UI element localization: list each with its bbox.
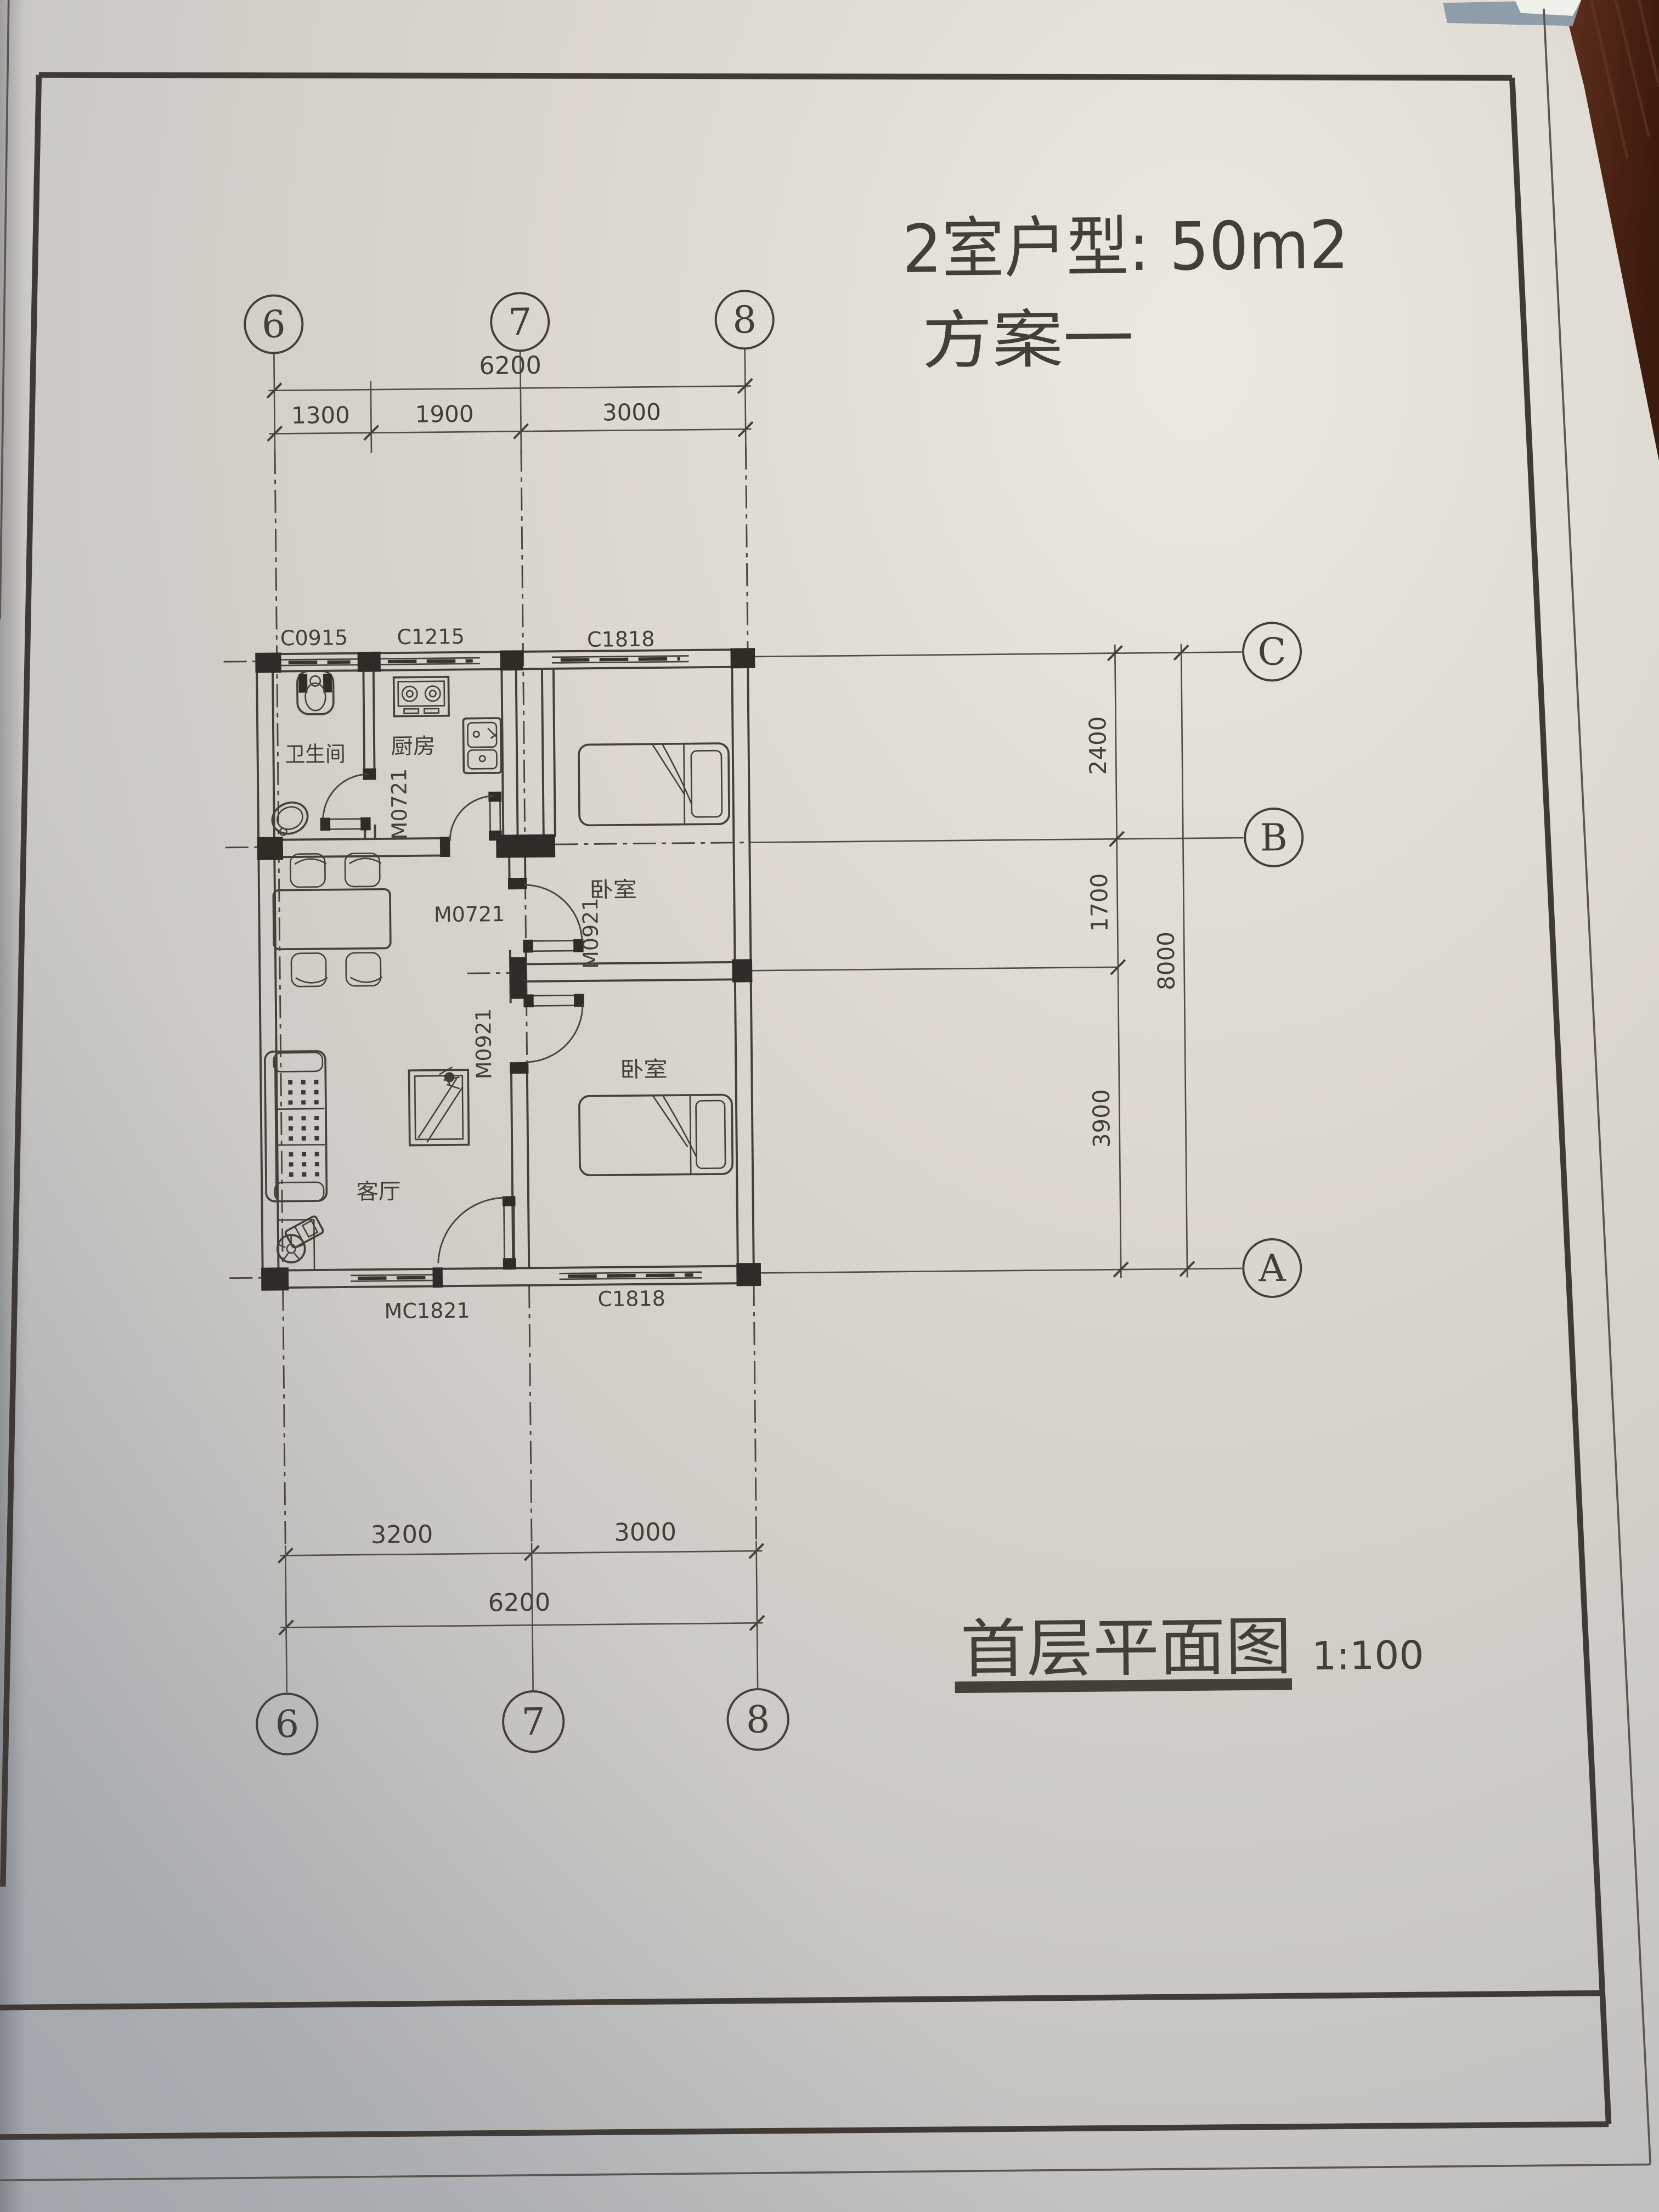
dim-right-8000: 8000 (1153, 932, 1180, 990)
door-leaf-cap (320, 817, 331, 831)
dim-extension-1300 (371, 381, 371, 453)
axis-bubble-8-bottom-label: 8 (746, 1699, 770, 1742)
room-label-kitchen: 厨房 (391, 733, 436, 759)
dim-top-3000: 3000 (602, 398, 661, 426)
axis-bubble-7-bottom-label: 7 (521, 1701, 545, 1744)
pier-top-partition (358, 652, 381, 672)
pier-B-left (257, 837, 283, 860)
window-label-C1818-bottom: C1818 (597, 1286, 665, 1311)
room-label-bedroom2: 卧室 (620, 1057, 668, 1082)
drawing-scale: 1:100 (1312, 1632, 1424, 1679)
jamb-bedroom1-door (508, 878, 527, 889)
axis-bubble-8-top-label: 8 (732, 298, 757, 342)
door-leaf-cap (360, 817, 371, 831)
axis6-extension-top (274, 353, 275, 451)
dim-right-3900: 3900 (1088, 1089, 1115, 1148)
paper-shadow-bottom-left (0, 0, 1659, 2212)
dim-right-2400: 2400 (1084, 716, 1111, 775)
pier-partition-junction (510, 957, 527, 998)
sheet-svg: 2室户型: 50m2 方案一 6200 1300 1900 3000 (0, 0, 1659, 2212)
unit-type-title: 2室户型: 50m2 (902, 207, 1349, 288)
pier-partition-right (732, 959, 752, 982)
jamb-bedroom2-door (510, 1062, 528, 1074)
room-label-bathroom: 卫生间 (285, 742, 346, 768)
pier-B-axis7 (496, 834, 555, 858)
window-label-C1818-top: C1818 (587, 627, 655, 652)
door-label-MC1821: MC1821 (384, 1299, 470, 1323)
axis8-extension-top (745, 348, 746, 446)
door-leaf-cap (523, 994, 534, 1007)
pier-top-right (730, 648, 755, 668)
axis-bubble-6-top-label: 6 (262, 303, 286, 346)
dim-top-overall: 6200 (479, 351, 541, 380)
axis-bubble-6-bottom-label: 6 (275, 1703, 299, 1746)
pier-top-axis7 (500, 650, 523, 670)
jamb-kitchen-door (440, 837, 450, 857)
axis-bubble-B-label: B (1260, 816, 1288, 860)
drawing-title: 首层平面图 (960, 1610, 1292, 1687)
door-leaf-cap (489, 831, 502, 841)
dim-bottom-3000: 3000 (614, 1517, 676, 1547)
dim-top-1900: 1900 (415, 400, 473, 428)
door-label-M0921-bedroom2: M0921 (471, 1008, 496, 1080)
dim-bottom-3200: 3200 (371, 1520, 433, 1549)
door-leaf-cap (523, 940, 533, 953)
window-label-C0915: C0915 (280, 625, 348, 650)
pier-top-left (255, 652, 281, 673)
dim-right-1700: 1700 (1086, 873, 1113, 932)
axis-bubble-C-label: C (1257, 630, 1286, 674)
door-label-M0721-kitchen: M0721 (434, 902, 505, 927)
scheme-title: 方案一 (922, 302, 1134, 378)
pier-bottom-left (261, 1267, 289, 1290)
window-label-C1215: C1215 (397, 624, 465, 649)
frame-top (39, 75, 1512, 78)
dim-top-1300: 1300 (291, 402, 350, 429)
axis-bubble-A-label: A (1258, 1247, 1286, 1290)
axis-bubble-7-top-label: 7 (508, 301, 532, 344)
room-label-living: 客厅 (356, 1179, 401, 1205)
pier-bottom-right (736, 1263, 761, 1286)
door-leaf-cap (503, 1258, 516, 1269)
door-label-M0721-bath: M0721 (387, 769, 411, 840)
door-label-M0921-bedroom1: M0921 (578, 898, 603, 969)
photo-of-floor-plan-sheet: 2室户型: 50m2 方案一 6200 1300 1900 3000 (0, 0, 1659, 2212)
jamb-living-door-left (432, 1267, 443, 1288)
dim-bottom-overall: 6200 (488, 1588, 550, 1617)
